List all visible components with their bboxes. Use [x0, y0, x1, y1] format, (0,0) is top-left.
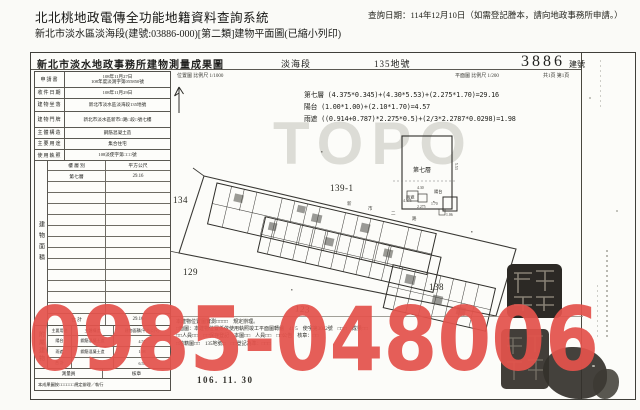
parcel-label-139-1: 139-1 [330, 183, 354, 193]
floor-name: 第七層 [48, 171, 106, 181]
area-empty-row [48, 182, 170, 193]
table-row: 建物坐落 新北市淡水區淡海段135地號 [35, 99, 170, 113]
dim-170: 1.70 [431, 202, 438, 206]
table-row: 申請書 108年11月27日 108年度淡測字第055850號 [35, 72, 170, 88]
row-value: 集合住宅 [65, 139, 170, 149]
floor-area: 29.16 [106, 171, 170, 181]
svg-text:路: 路 [412, 215, 417, 222]
row-label: 主體構造 [35, 128, 65, 138]
area-row: 第七層 29.16 [48, 171, 170, 182]
area-empty-row [48, 215, 170, 226]
document-subtitle: 新北市淡水區淡海段(建號:03886-000)[第二類]建物平面圖(已縮小列印) [35, 25, 341, 40]
row-value: 新北市淡水區新市□路□段□號七樓 [65, 112, 170, 127]
north-arrow-icon [175, 87, 184, 113]
row-label: 主要用途 [35, 139, 65, 149]
section-name: 淡海段 [281, 57, 311, 70]
area-empty-row [48, 248, 170, 259]
row-value: 鋼筋混凝土造 [65, 128, 170, 138]
table-row: 使用執照 108淡使字第□□□號 [35, 150, 170, 162]
balcony-label: 陽台 [434, 188, 442, 195]
query-date: 查詢日期：114年12月10日（如需登記謄本，請向地政事務所申請。） [368, 9, 634, 21]
scale-location-label: 位置圖 比例尺 1/1000 [177, 72, 223, 79]
area-empty-row [48, 270, 170, 281]
col-header-floor: 樓 層 別 [48, 161, 106, 170]
phone-watermark: 0985-048006 [28, 296, 599, 384]
row-label: 申請書 [35, 72, 65, 87]
scale-plan-label: 平面圖 比例尺 1/200 [455, 72, 499, 79]
row-value: 108年11月29日 [65, 88, 170, 98]
table-row: 主體構造 鋼筋混凝土造 [35, 128, 170, 139]
row-label: 建物坐落 [35, 99, 65, 112]
svg-text:市: 市 [368, 205, 373, 212]
table-row: 建物門牌 新北市淡水區新市□路□段□號七樓 [35, 112, 170, 128]
area-empty-row [48, 226, 170, 237]
screen: 北北桃地政電傳全功能地籍資料查詢系統 查詢日期：114年12月10日（如需登記謄… [0, 0, 640, 410]
col-header-sqm: 平方公尺 [106, 161, 170, 170]
parcel-label-134: 134 [173, 195, 188, 205]
row-value: 新北市淡水區淡海段135地號 [65, 99, 170, 112]
unit-detail-drawing: 第七層 5.53 4.30 4.375 2.275 1.70 1.06 陽台 雨… [393, 136, 458, 217]
scan-streak [600, 60, 601, 110]
building-number-label: 建號 [569, 59, 585, 70]
row-label: 建物門牌 [35, 112, 65, 127]
area-empty-row [48, 259, 170, 270]
svg-text:新: 新 [347, 200, 352, 207]
dim-2275: 2.275 [417, 205, 426, 209]
form-title: 新北市淡水地政事務所建物測量成果圖 [37, 56, 224, 71]
row-label: 使用執照 [35, 150, 65, 161]
unit-floor-label: 第七層 [413, 166, 431, 174]
dim-106: 1.06 [446, 213, 453, 217]
dim-4375: 4.375 [403, 199, 412, 203]
row-value: 108淡使字第□□□號 [65, 150, 170, 161]
scan-streak [606, 250, 608, 340]
area-empty-row [48, 237, 170, 248]
svg-text:二: 二 [391, 211, 396, 216]
building-number: 3886 [521, 53, 565, 71]
parcel-label-129: 129 [183, 267, 198, 277]
scan-speck [616, 210, 618, 212]
table-row: 主要用途 集合住宅 [35, 139, 170, 150]
dim-553: 5.53 [454, 163, 458, 170]
canopy-label: 雨遮 [406, 194, 414, 201]
table-row: 收件日期 108年11月29日 [35, 88, 170, 99]
system-title: 北北桃地政電傳全功能地籍資料查詢系統 [35, 7, 269, 26]
area-empty-row [48, 193, 170, 204]
row-value-2: 108年度淡測字第055850號 [91, 79, 144, 84]
scan-speck [589, 97, 591, 99]
dim-430: 4.30 [417, 186, 424, 190]
row-label: 收件日期 [35, 88, 65, 98]
area-empty-row [48, 204, 170, 215]
pagination: 共1頁 第1頁 [543, 72, 569, 79]
parcel-number: 135地號 [374, 57, 411, 70]
